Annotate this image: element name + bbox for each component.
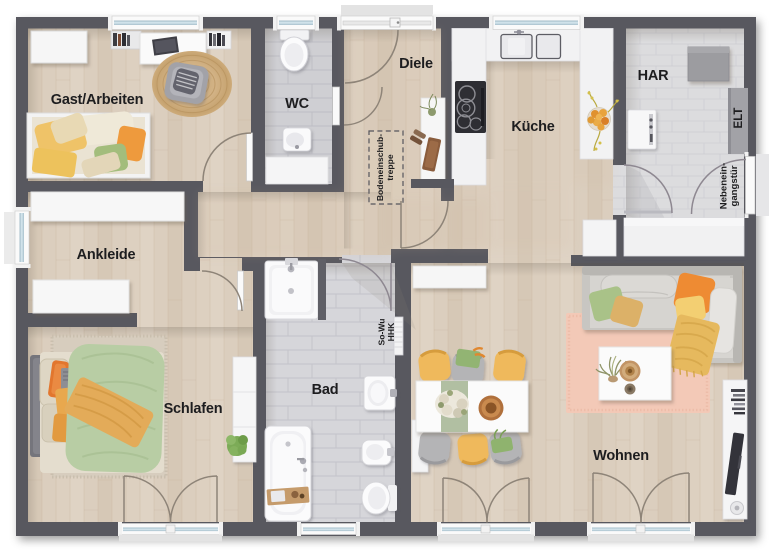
svg-text:Schlafen: Schlafen	[164, 401, 223, 417]
svg-text:Diele: Diele	[399, 56, 433, 72]
svg-text:Küche: Küche	[511, 119, 554, 135]
svg-text:HHK: HHK	[386, 322, 396, 341]
svg-text:Wohnen: Wohnen	[593, 448, 649, 464]
svg-text:Gast/Arbeiten: Gast/Arbeiten	[51, 92, 143, 108]
svg-text:ELT: ELT	[733, 108, 745, 129]
svg-text:WC: WC	[285, 96, 309, 112]
svg-text:Nebenein-: Nebenein-	[719, 163, 730, 209]
svg-text:So-Wu: So-Wu	[377, 318, 387, 345]
svg-text:Bodeneinschub-: Bodeneinschub-	[375, 134, 385, 201]
svg-text:Bad: Bad	[312, 382, 339, 398]
svg-text:Ankleide: Ankleide	[77, 247, 136, 263]
svg-text:HAR: HAR	[638, 68, 670, 84]
svg-text:gangstür: gangstür	[729, 165, 740, 206]
svg-text:treppe: treppe	[385, 154, 395, 180]
